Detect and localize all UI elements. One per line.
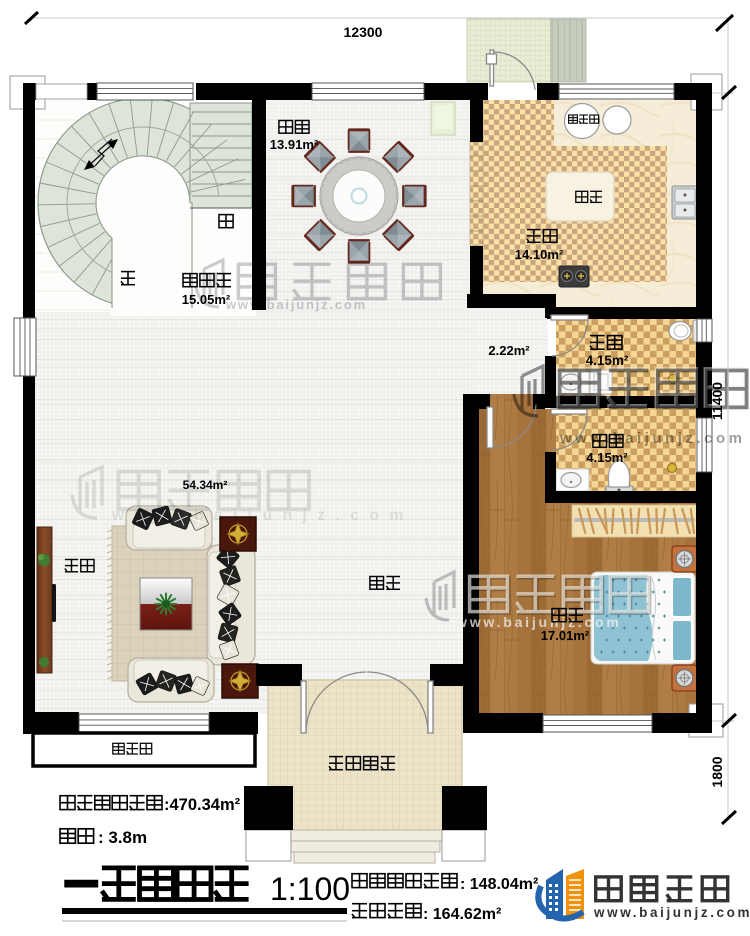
svg-text:www.baijunjz.com: www.baijunjz.com <box>225 297 367 312</box>
svg-text:: 164.62m²: : 164.62m² <box>423 906 501 923</box>
svg-text:11400: 11400 <box>709 382 725 420</box>
svg-text:1800: 1800 <box>709 756 725 787</box>
svg-text:54.34m²: 54.34m² <box>183 478 228 492</box>
svg-text:4.15m²: 4.15m² <box>586 450 628 465</box>
svg-text:www.baijunjz.com: www.baijunjz.com <box>559 430 745 447</box>
svg-text:www.baijunjz.com: www.baijunjz.com <box>111 507 414 524</box>
svg-text:: 148.04m²: : 148.04m² <box>460 876 538 893</box>
svg-text:: 3.8m: : 3.8m <box>98 828 147 847</box>
svg-text:www.baijunjz.com: www.baijunjz.com <box>593 905 750 920</box>
svg-text:14.10m²: 14.10m² <box>515 247 564 262</box>
svg-text:2.22m²: 2.22m² <box>488 343 530 358</box>
svg-text:4.15m²: 4.15m² <box>586 353 629 368</box>
svg-text:13.91m²: 13.91m² <box>270 137 319 152</box>
svg-text:17.01m²: 17.01m² <box>541 628 590 643</box>
svg-text:12300: 12300 <box>344 24 383 40</box>
svg-text:www.baijunjz.com: www.baijunjz.com <box>455 614 622 630</box>
svg-text::470.34m²: :470.34m² <box>164 796 241 814</box>
svg-text:15.05m²: 15.05m² <box>182 292 231 307</box>
svg-text:1:100: 1:100 <box>270 871 350 907</box>
